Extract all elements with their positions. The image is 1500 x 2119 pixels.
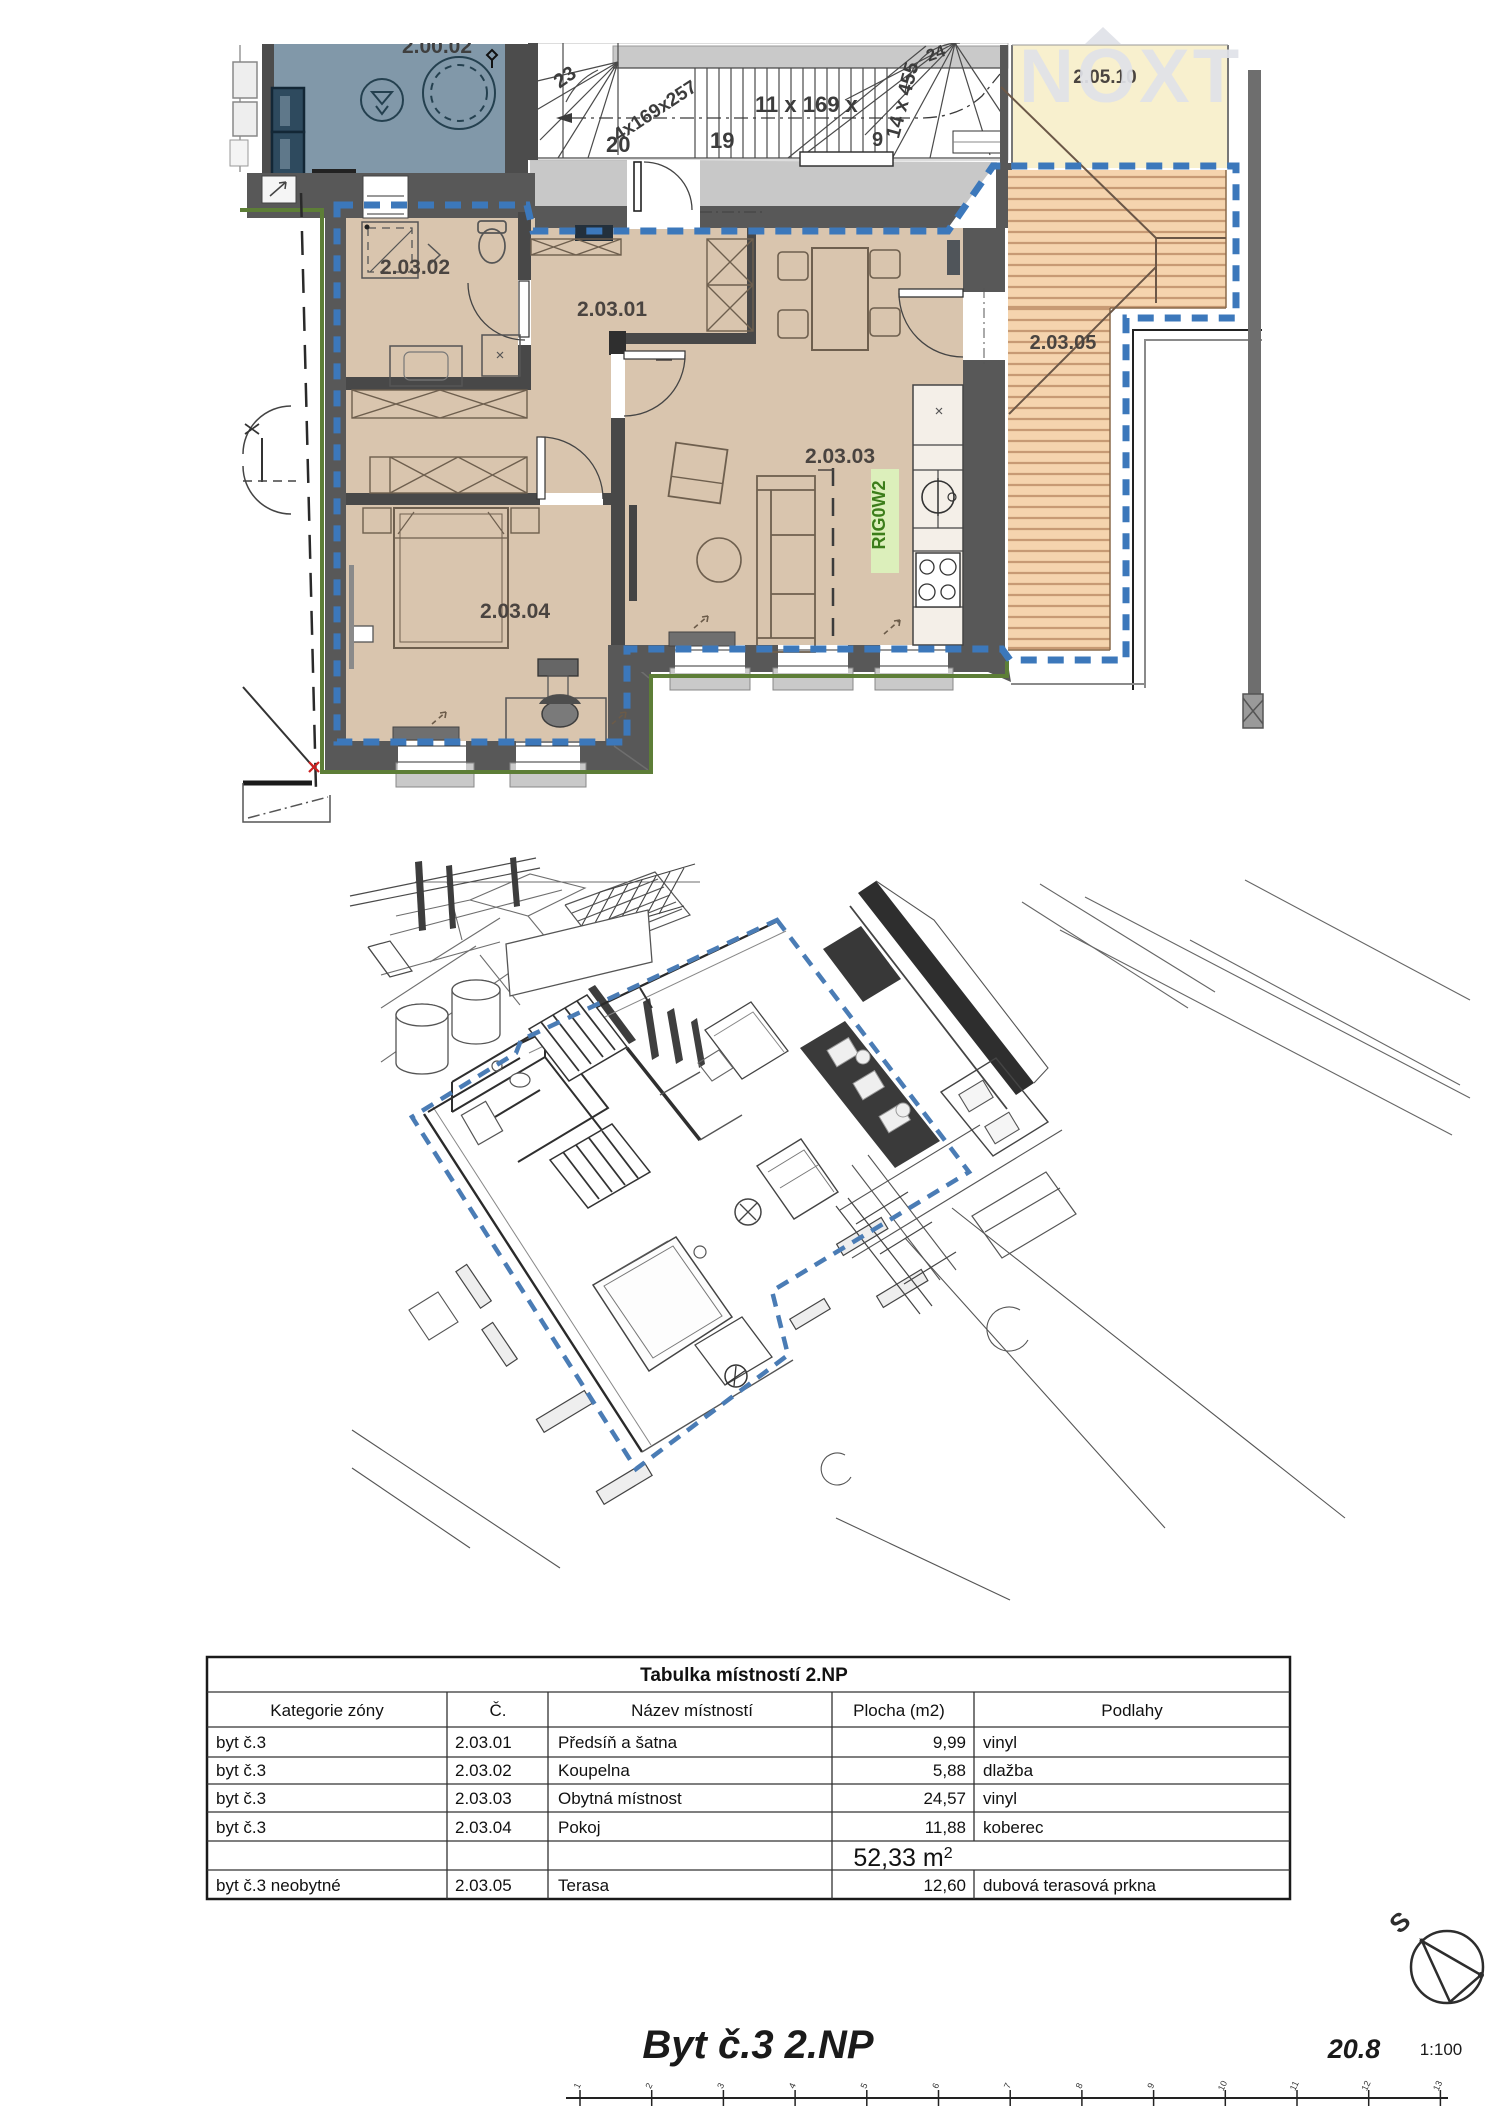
svg-text:2.03.04: 2.03.04 [480,600,550,623]
svg-text:Kategorie zóny: Kategorie zóny [270,1701,384,1720]
svg-text:byt č.3 neobytné: byt č.3 neobytné [216,1876,341,1895]
svg-text:1:100: 1:100 [1420,2040,1463,2059]
svg-text:Pokoj: Pokoj [558,1818,601,1837]
svg-text:Tabulka místností 2.NP: Tabulka místností 2.NP [640,1665,848,1686]
svg-text:2.03.02: 2.03.02 [455,1761,512,1780]
svg-text:24,57: 24,57 [923,1789,966,1808]
svg-text:5,88: 5,88 [933,1761,966,1780]
svg-text:9: 9 [872,129,883,151]
svg-text:koberec: koberec [983,1818,1044,1837]
svg-text:byt č.3: byt č.3 [216,1733,266,1752]
svg-text:2.03.04: 2.03.04 [455,1818,512,1837]
svg-text:dlažba: dlažba [983,1761,1034,1780]
svg-text:vinyl: vinyl [983,1789,1017,1808]
svg-text:11 x 169 x: 11 x 169 x [755,92,859,117]
svg-text:RIG0W2: RIG0W2 [869,480,889,549]
svg-text:19: 19 [710,128,734,153]
svg-text:Plocha (m2): Plocha (m2) [853,1701,945,1720]
svg-text:2.03.05: 2.03.05 [1030,332,1097,354]
svg-text:2.03.01: 2.03.01 [577,298,647,321]
svg-text:2.03.05: 2.03.05 [455,1876,512,1895]
svg-text:NOXT: NOXT [1019,34,1242,119]
svg-text:vinyl: vinyl [983,1733,1017,1752]
svg-text:11,88: 11,88 [925,1818,966,1837]
svg-text:20: 20 [606,132,630,157]
svg-text:Obytná místnost: Obytná místnost [558,1789,682,1808]
svg-text:52,33 m2: 52,33 m2 [853,1844,952,1872]
svg-text:Předsíň a šatna: Předsíň a šatna [558,1733,678,1752]
svg-text:20.8: 20.8 [1327,2034,1381,2064]
svg-text:9,99: 9,99 [933,1733,966,1752]
svg-text:dubová terasová prkna: dubová terasová prkna [983,1876,1156,1895]
svg-text:Název místností: Název místností [631,1701,753,1720]
svg-text:Podlahy: Podlahy [1101,1701,1163,1720]
svg-text:Koupelna: Koupelna [558,1761,630,1780]
svg-text:byt č.3: byt č.3 [216,1761,266,1780]
svg-text:byt č.3: byt č.3 [216,1789,266,1808]
svg-text:2.03.03: 2.03.03 [455,1789,512,1808]
svg-text:2.03.02: 2.03.02 [380,256,450,279]
svg-text:Terasa: Terasa [558,1876,610,1895]
svg-text:Byt č.3 2.NP: Byt č.3 2.NP [642,2023,874,2067]
svg-text:2.03.01: 2.03.01 [455,1733,512,1752]
svg-text:2.03.03: 2.03.03 [805,445,875,468]
svg-text:byt č.3: byt č.3 [216,1818,266,1837]
svg-text:12,60: 12,60 [923,1876,966,1895]
svg-text:Č.: Č. [490,1701,507,1720]
